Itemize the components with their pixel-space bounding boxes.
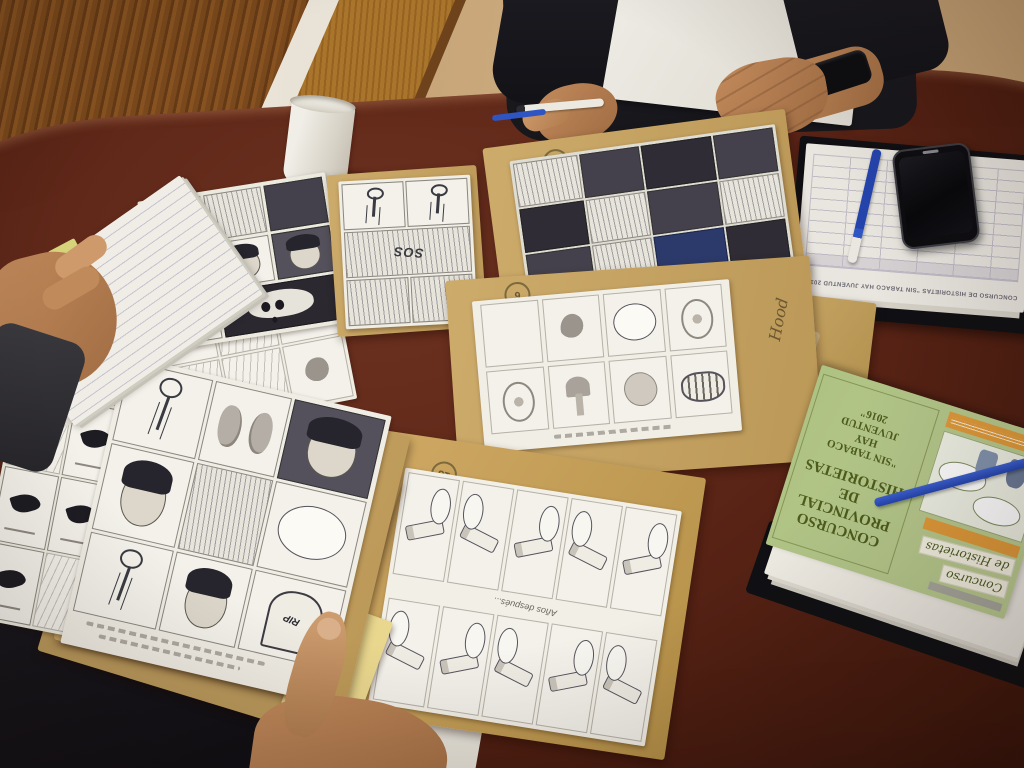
comic-panel [713, 127, 778, 179]
comic-panel-figure [73, 532, 174, 630]
rip-text: RIP [282, 611, 302, 628]
comic-panel [346, 277, 410, 326]
comic-panel-face [159, 552, 253, 648]
comic-panel [513, 155, 584, 208]
comic-panel [264, 177, 329, 232]
phone-screen [898, 150, 974, 239]
speech-bubble [969, 491, 1023, 531]
photo-scene: CONCURSO DE HISTORIETAS "SIN TABACO HAY … [0, 0, 1024, 768]
comic-panel [480, 300, 543, 368]
comic-panel-sos: SOS [344, 226, 472, 279]
comic-page-storyboard [472, 279, 742, 453]
comic-panel-lungs [198, 381, 292, 477]
comic-panel [664, 284, 727, 352]
comic-panel [603, 289, 666, 357]
comic-panel-teeth [670, 350, 733, 418]
comic-page-cigarettes: Años después... [368, 468, 682, 747]
comic-panel-skeleton [405, 178, 469, 227]
envelope-note-hood: Hood [765, 296, 792, 342]
comic-panel-face [92, 443, 195, 549]
smartphone [891, 142, 981, 251]
comic-panel [519, 200, 590, 253]
thumb-nail [314, 615, 343, 643]
comic-panel [609, 356, 672, 424]
comic-panel-face [271, 225, 336, 280]
comic-panel-skeleton [341, 181, 405, 230]
sos-text: SOS [392, 243, 423, 260]
comic-panel [580, 146, 645, 198]
comic-panel [586, 192, 651, 244]
comic-panel [486, 367, 549, 435]
comic-panel [720, 173, 785, 225]
comic-panel [547, 361, 610, 429]
comic-panel [641, 136, 718, 190]
comic-panel [541, 294, 604, 362]
comic-panel-bubble [256, 481, 367, 588]
comic-panel [647, 182, 724, 236]
